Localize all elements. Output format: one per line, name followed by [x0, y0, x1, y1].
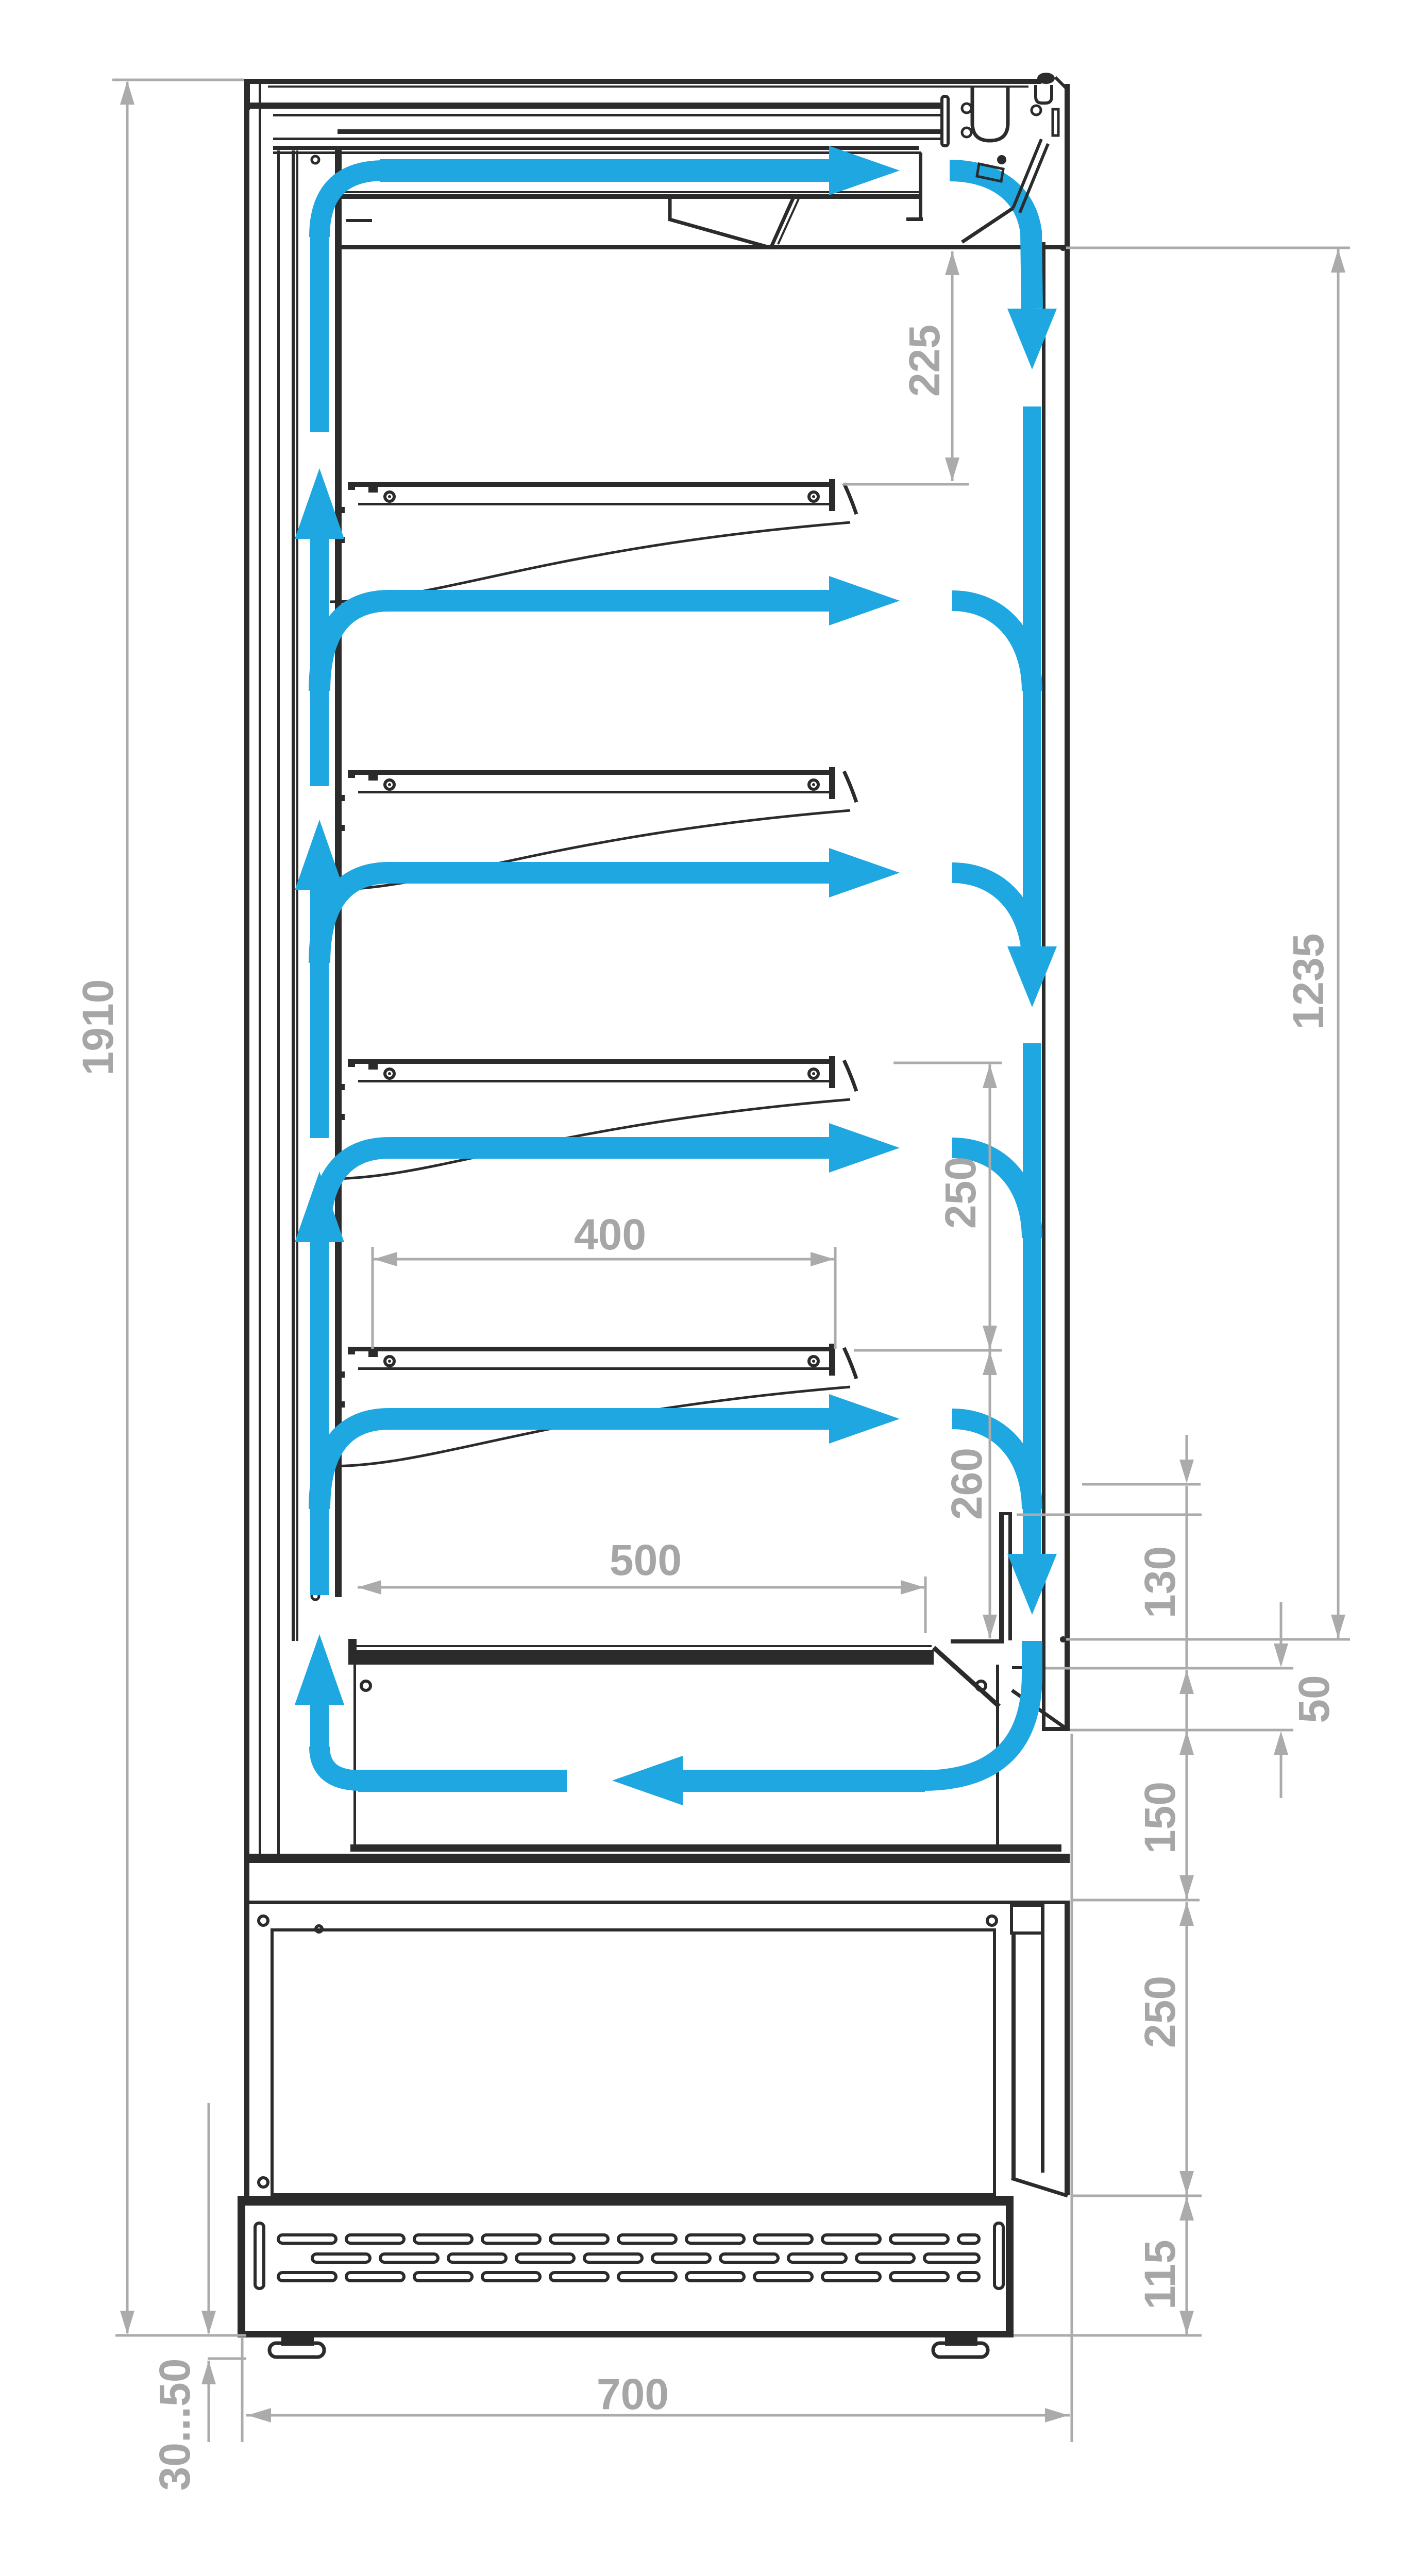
svg-text:250: 250	[1136, 1976, 1184, 2048]
svg-text:225: 225	[900, 325, 949, 397]
svg-text:500: 500	[610, 1536, 682, 1584]
svg-text:115: 115	[1136, 2240, 1184, 2310]
svg-text:130: 130	[1136, 1546, 1184, 1618]
svg-text:700: 700	[597, 2370, 669, 2418]
svg-text:1235: 1235	[1284, 934, 1332, 1030]
svg-text:150: 150	[1136, 1782, 1184, 1854]
svg-text:250: 250	[936, 1157, 985, 1229]
svg-text:30...50: 30...50	[150, 2359, 199, 2491]
svg-text:50: 50	[1290, 1675, 1338, 1723]
svg-text:400: 400	[574, 1210, 646, 1259]
svg-text:1910: 1910	[74, 979, 122, 1076]
svg-text:260: 260	[942, 1448, 991, 1520]
